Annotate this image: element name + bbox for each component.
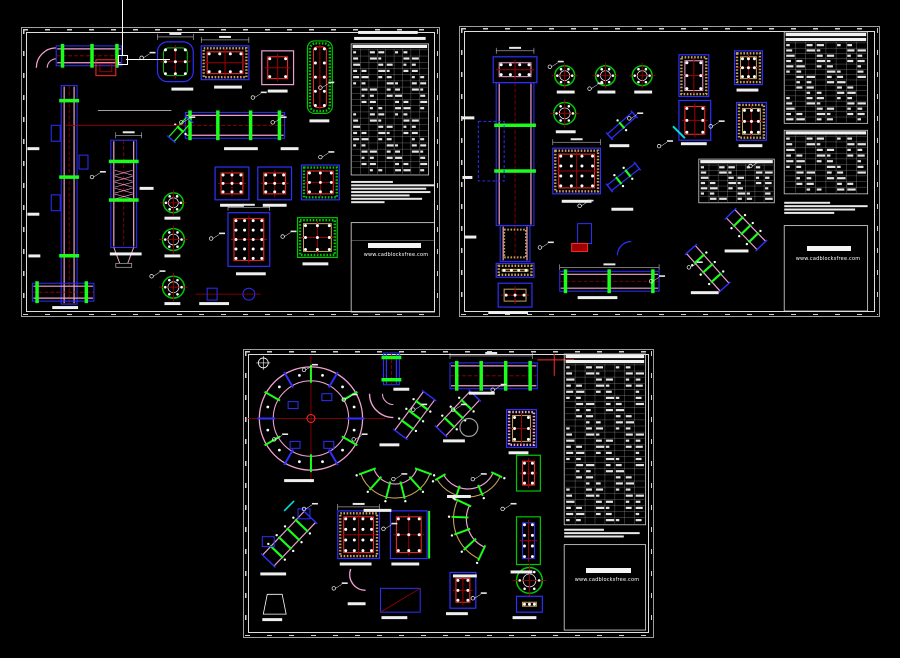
watermark-text: www.cadblocksfree.com bbox=[784, 256, 872, 262]
crosshair-cursor-horizontal bbox=[126, 59, 170, 60]
sheet-3: www.cadblocksfree.com bbox=[243, 349, 654, 638]
sheet-1-canvas[interactable] bbox=[22, 28, 439, 316]
sheet-1: www.cadblocksfree.com bbox=[21, 27, 440, 317]
crosshair-cursor-vertical bbox=[122, 0, 123, 56]
titleblock-logo-bar bbox=[807, 246, 851, 251]
sheet-2-canvas[interactable] bbox=[460, 27, 879, 316]
cad-workspace: www.cadblocksfree.com www.cadblocksfree.… bbox=[0, 0, 900, 658]
titleblock-logo-bar bbox=[368, 243, 421, 248]
sheet-2: www.cadblocksfree.com bbox=[459, 26, 880, 317]
sheet-3-canvas[interactable] bbox=[244, 350, 653, 637]
titleblock-logo-bar bbox=[586, 568, 631, 573]
watermark-text: www.cadblocksfree.com bbox=[562, 577, 652, 583]
crosshair-pickbox bbox=[118, 55, 128, 65]
watermark-text: www.cadblocksfree.com bbox=[356, 252, 436, 258]
